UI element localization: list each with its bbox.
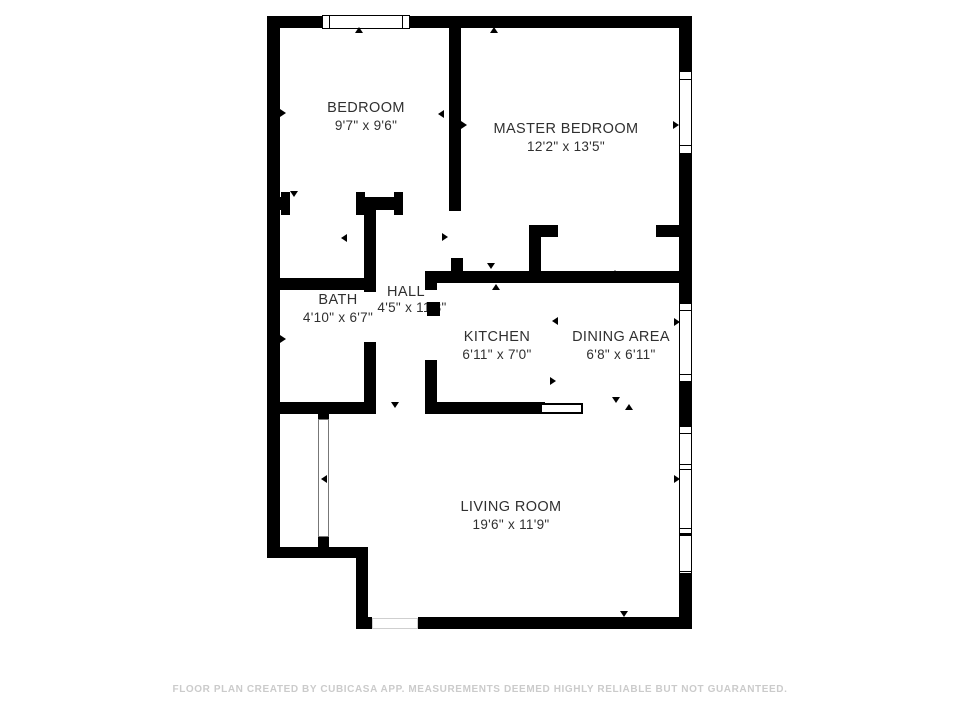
window-mullion [680,464,691,465]
direction-marker-icon [625,404,633,410]
room-label-bath: BATH 4'10" x 6'7" [303,292,373,326]
bedroom-window [322,15,410,29]
wall-master-closet-stub-right [656,225,681,237]
window-tick [680,310,691,311]
room-dimensions: 12'2" x 13'5" [494,139,639,155]
room-name: MASTER BEDROOM [494,121,639,137]
window-tick [329,16,330,28]
wall-bedroom-master-divider [449,28,461,211]
wall-bath-top [267,278,373,290]
window-mullion [680,533,691,536]
living-room-window [679,426,692,574]
direction-marker-icon [391,402,399,408]
room-name: LIVING ROOM [460,499,561,515]
wall-bedroom-bottom-left-cap [281,192,290,215]
direction-marker-icon [611,270,619,276]
room-label-living-room: LIVING ROOM 19'6" x 11'9" [460,499,561,533]
room-name: BATH [303,292,373,308]
window-mullion [680,528,691,529]
direction-marker-icon [442,233,448,241]
direction-marker-icon [487,263,495,269]
footer-disclaimer: FLOOR PLAN CREATED BY CUBICASA APP. MEAS… [172,684,787,695]
direction-marker-icon [490,27,498,33]
room-name: BEDROOM [327,100,405,116]
direction-marker-icon [674,318,680,326]
wall-entry-jamb [356,617,372,629]
wall-bedroom-bottom-right-cap-right [394,192,403,215]
wall-kitchen-bottom [425,402,545,414]
room-label-master-bedroom: MASTER BEDROOM 12'2" x 13'5" [494,121,639,155]
wall-exterior-bottom [418,617,692,629]
room-name: DINING AREA [572,329,670,345]
room-dimensions: 6'11" x 7'0" [462,347,531,363]
direction-marker-icon [280,109,286,117]
direction-marker-icon [461,121,467,129]
direction-marker-icon [321,475,327,483]
room-dimensions: 9'7" x 9'6" [327,118,405,134]
direction-marker-icon [552,317,558,325]
room-dimensions: 19'6" x 11'9" [460,517,561,533]
room-label-dining-area: DINING AREA 6'8" x 6'11" [572,329,670,363]
wall-closet-stub-bottom [318,535,329,558]
window-tick [402,16,403,28]
window-tick [680,571,691,572]
direction-marker-icon [355,27,363,33]
window-tick [680,145,691,146]
window-tick [680,433,691,434]
direction-marker-icon [492,284,500,290]
direction-marker-icon [290,191,298,197]
direction-marker-icon [612,397,620,403]
wall-master-closet-stub-left [529,225,558,237]
room-dimensions: 4'10" x 6'7" [303,310,373,326]
room-label-bedroom: BEDROOM 9'7" x 9'6" [327,100,405,134]
wall-kitchen-dining-top [425,271,681,283]
direction-marker-icon [620,611,628,617]
direction-marker-icon [550,377,556,385]
direction-marker-icon [674,475,680,483]
floor-plan: BEDROOM 9'7" x 9'6" MASTER BEDROOM 12'2"… [0,0,960,720]
room-dimensions: 6'8" x 6'11" [572,347,670,363]
window-tick [680,79,691,80]
master-bedroom-window [679,71,692,154]
kitchen-passthrough [540,403,583,414]
window-tick [680,374,691,375]
direction-marker-icon [673,121,679,129]
window-mullion [680,469,691,470]
direction-marker-icon [341,234,347,242]
wall-kitchen-door-pier [427,302,440,316]
entry-door-opening [372,618,418,629]
room-label-kitchen: KITCHEN 6'11" x 7'0" [462,329,531,363]
room-name: KITCHEN [462,329,531,345]
dining-window [679,303,692,382]
direction-marker-icon [280,335,286,343]
direction-marker-icon [438,110,444,118]
